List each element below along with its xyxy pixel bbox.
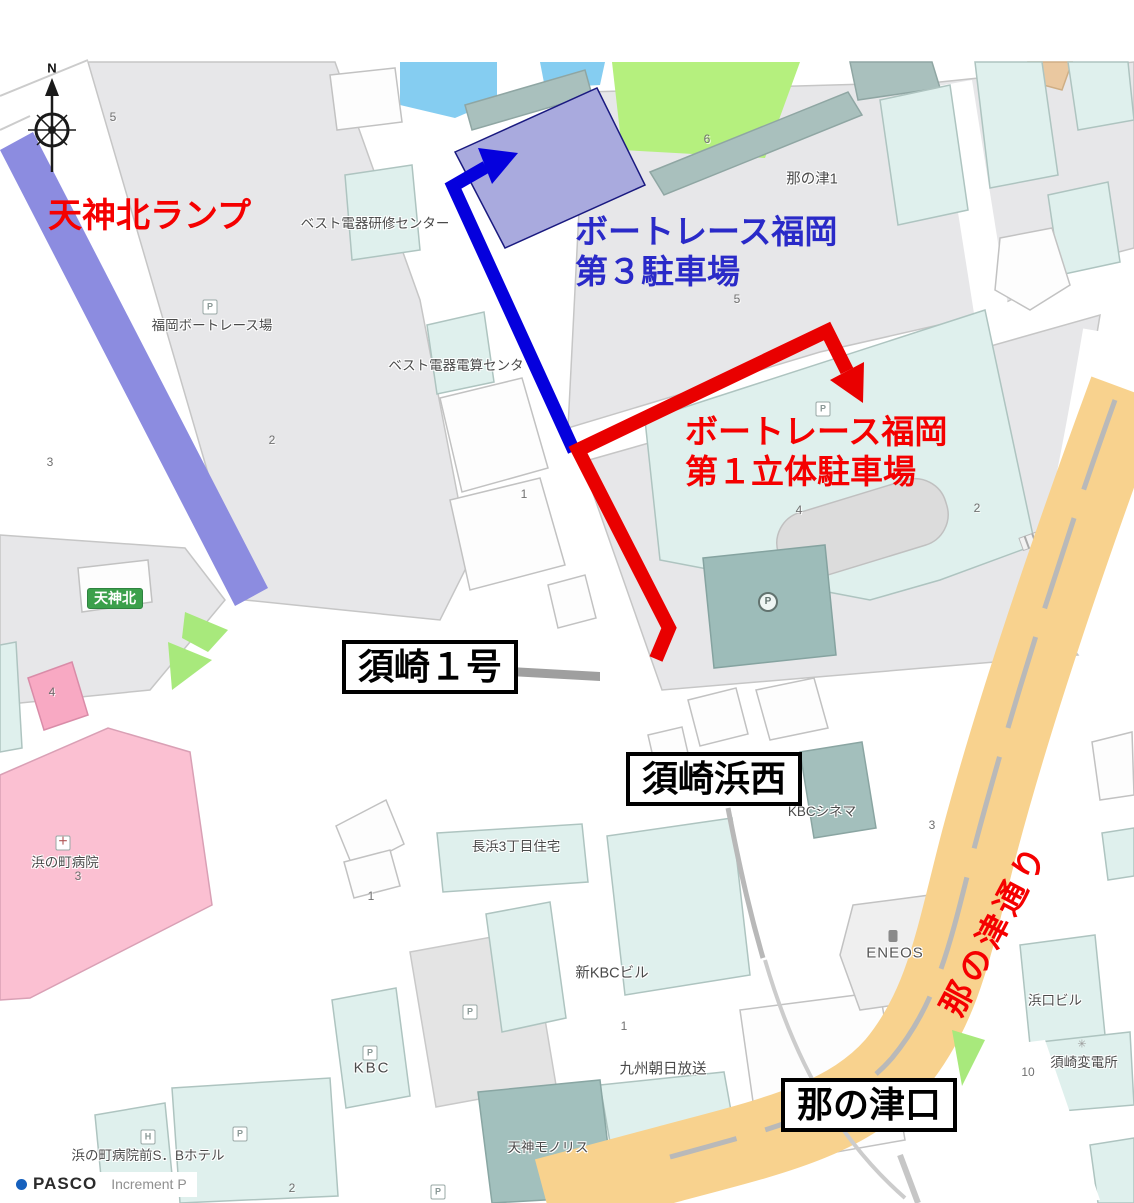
label-kyushu-asahi: 九州朝日放送 — [620, 1058, 707, 1079]
label-hamaguchi-bldg: 浜口ビル — [1028, 989, 1082, 1009]
block-number: 1 — [621, 1019, 628, 1033]
block-number: 1 — [521, 487, 528, 501]
hospital-icon: ＋ — [56, 836, 71, 851]
compass-north-label: N — [47, 61, 56, 76]
attribution-brand: PASCO — [33, 1174, 97, 1194]
block-number: 5 — [734, 292, 741, 306]
signbox-nanotsu-guchi: 那の津口 — [781, 1078, 957, 1132]
block-number: 4 — [49, 685, 56, 699]
label-boat-race-stadium: 福岡ボートレース場 — [152, 314, 273, 334]
label-hamanomachi-hospital: 浜の町病院 — [31, 851, 99, 871]
label-kbc: KBC — [354, 1060, 391, 1077]
label-shin-kbc: 新KBCビル — [575, 962, 648, 983]
label-susaki-substation: 須崎変電所 — [1050, 1051, 1118, 1071]
pasco-logo-icon — [16, 1179, 27, 1190]
block-number: 2 — [974, 501, 981, 515]
annotation-parking1: ボートレース福岡 第１立体駐車場 — [685, 412, 947, 493]
label-eneos: ENEOS — [866, 945, 924, 962]
block-number: 2 — [269, 433, 276, 447]
label-best-denki-training: ベスト電器研修センター — [301, 212, 450, 232]
annotation-parking1-line1: ボートレース福岡 — [685, 412, 947, 452]
label-nagahama-housing: 長浜3丁目住宅 — [472, 835, 561, 855]
block-number: 3 — [47, 455, 54, 469]
map-canvas — [0, 0, 1134, 1203]
parking-icon: P — [233, 1127, 248, 1142]
road-median — [510, 667, 600, 681]
label-best-denki-computing: ベスト電器電算センタ — [388, 354, 523, 374]
route-map: ベスト電器研修センター 福岡ボートレース場 ベスト電器電算センタ 那の津1 KB… — [0, 0, 1134, 1203]
block-number: 6 — [704, 132, 711, 146]
annotation-parking3: ボートレース福岡 第３駐車場 — [575, 212, 837, 293]
annotation-parking3-line1: ボートレース福岡 — [575, 212, 837, 252]
signbox-susaki1: 須崎１号 — [342, 640, 518, 694]
kbc-cinema-building — [800, 742, 876, 838]
parking-garage-icon: P — [758, 592, 778, 612]
block-number: 2 — [289, 1181, 296, 1195]
parking-icon: P — [363, 1046, 378, 1061]
hotel-icon: H — [141, 1130, 156, 1145]
road-sign-tenjin-kita: 天神北 — [87, 588, 143, 609]
block-number: 10 — [1021, 1065, 1034, 1079]
block-number: 5 — [110, 110, 117, 124]
block-number: 4 — [796, 503, 803, 517]
annotation-parking3-line2: 第３駐車場 — [575, 252, 837, 292]
block-number: 3 — [929, 818, 936, 832]
map-attribution: PASCO Increment P — [10, 1172, 197, 1197]
signbox-susaki-hamanishi: 須崎浜西 — [626, 752, 802, 806]
annotation-parking1-line2: 第１立体駐車場 — [685, 452, 947, 492]
block-number: 3 — [75, 869, 82, 883]
label-sb-hotel: 浜の町病院前S．Bホテル — [71, 1144, 224, 1164]
substation-gear-icon: ✳ — [1077, 1038, 1086, 1051]
gas-station-icon — [889, 930, 898, 942]
label-tenjin-monolith: 天神モノリス — [508, 1136, 589, 1156]
parking-icon: P — [203, 300, 218, 315]
boat-race-stadium-block — [88, 62, 470, 620]
label-nanotsu1: 那の津1 — [786, 168, 838, 189]
parking-icon: P — [463, 1005, 478, 1020]
annotation-tenjin-kita-ramp: 天神北ランプ — [48, 196, 251, 237]
attribution-provider: Increment P — [111, 1176, 186, 1192]
parking-icon: P — [431, 1185, 446, 1200]
block-number: 1 — [368, 889, 375, 903]
